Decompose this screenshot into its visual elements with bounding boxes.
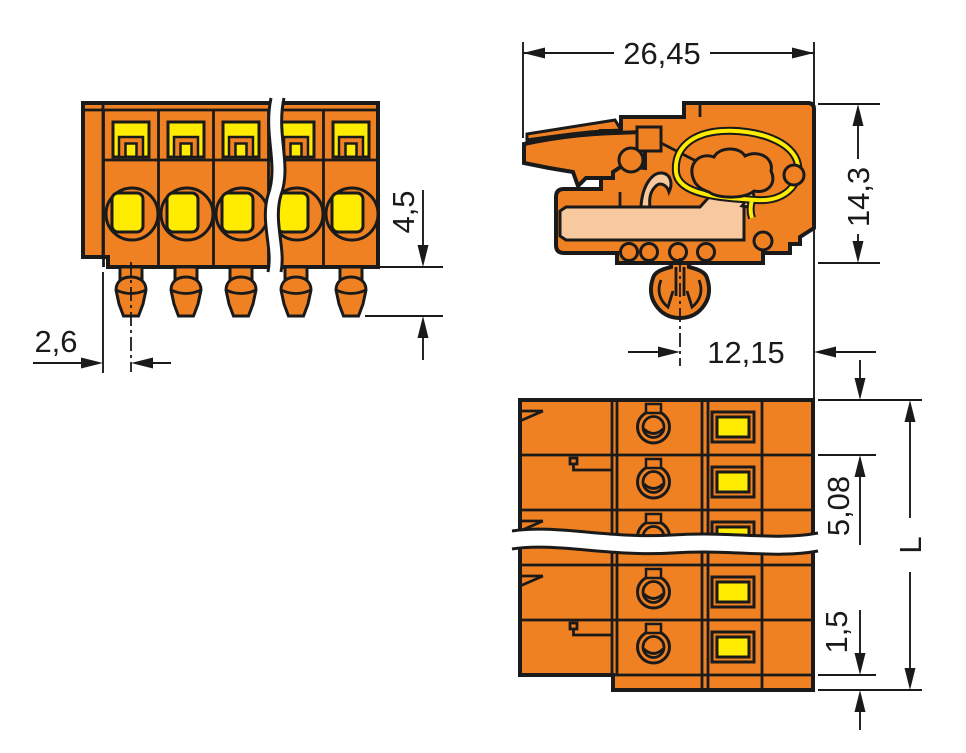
dim-label-pin-offset: 2,6 <box>34 324 77 359</box>
arrowhead-up-icon <box>905 400 916 422</box>
dim-label-total-width: 26,45 <box>623 36 701 71</box>
dim-label-pitch: 5,08 <box>821 476 856 536</box>
clamp-spring-leg <box>751 200 753 218</box>
bottom-view: 5,08 1,5 L <box>512 360 928 730</box>
bottom-circle-1 <box>621 244 638 261</box>
arrowhead-up-icon <box>855 690 866 712</box>
molding-circle <box>754 232 772 250</box>
arrowhead-down-icon <box>418 245 429 267</box>
dim-label-height: 14,3 <box>841 167 876 227</box>
arrowhead-right-icon <box>658 347 680 358</box>
dim-label-foot-offset: 12,15 <box>707 335 785 370</box>
arrowhead-left-icon <box>523 48 545 59</box>
arrowhead-down-icon <box>853 241 864 263</box>
bottom-circle-4 <box>698 244 715 261</box>
arrowhead-right-icon <box>792 48 814 59</box>
technical-drawing-canvas: 2,6 4,5 <box>0 0 966 753</box>
dimension-foot-offset: 12,15 <box>628 335 876 370</box>
dimension-height: 14,3 <box>818 104 880 263</box>
vent-hole <box>637 127 661 151</box>
front-view: 2,6 4,5 <box>33 98 443 373</box>
dimension-end-offset: 1,5 <box>818 610 876 730</box>
arrowhead-left-icon <box>814 347 836 358</box>
arrowhead-right-icon <box>81 358 103 369</box>
bottom-circle-2 <box>641 244 658 261</box>
molding-circle <box>784 165 804 185</box>
dim-label-end-offset: 1,5 <box>819 610 854 653</box>
arrowhead-up-icon <box>853 104 864 126</box>
dimension-pin-offset: 2,6 <box>33 272 171 373</box>
arrowhead-down-icon <box>905 668 916 690</box>
arrowhead-down-icon <box>855 378 866 400</box>
spring-cavity <box>692 149 773 197</box>
pivot-circle <box>619 148 643 172</box>
arrowhead-up-icon <box>855 455 866 477</box>
arrowhead-left-icon <box>131 358 153 369</box>
side-view: 26,45 14,3 12,15 <box>523 36 880 400</box>
arrowhead-up-icon <box>418 316 429 338</box>
bottom-circle-3 <box>670 244 687 261</box>
dim-label-pin-projection: 4,5 <box>386 190 421 233</box>
dimension-pitch: 5,08 <box>818 360 876 545</box>
arrowhead-down-icon <box>855 653 866 675</box>
connector-drawing: 2,6 4,5 <box>0 0 966 753</box>
dim-label-total-length: L <box>893 536 928 553</box>
